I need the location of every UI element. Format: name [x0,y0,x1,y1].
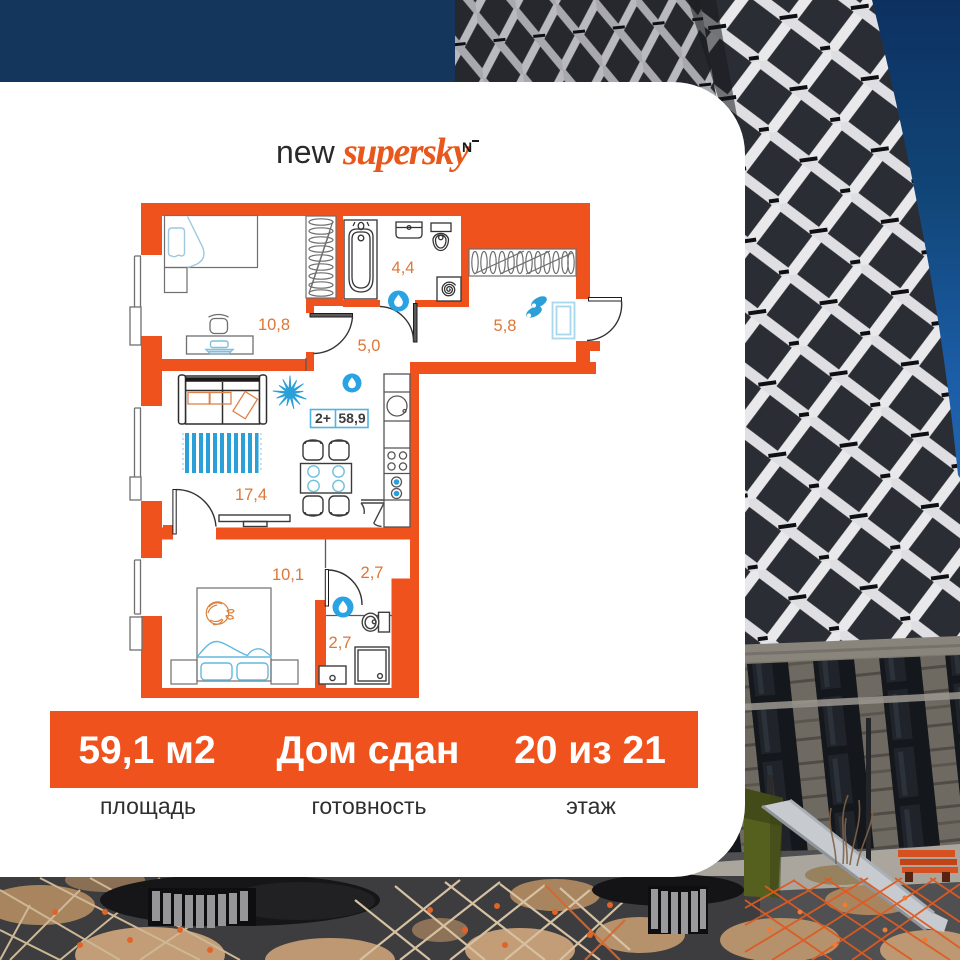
svg-text:20 из 21: 20 из 21 [514,729,666,772]
svg-text:supersky: supersky [342,131,470,173]
svg-text:N: N [462,139,472,155]
svg-text:площадь: площадь [100,793,196,819]
svg-text:5,8: 5,8 [494,317,517,335]
svg-text:10,1: 10,1 [272,566,304,584]
svg-text:new: new [276,134,336,170]
svg-text:4,4: 4,4 [392,259,415,277]
svg-text:этаж: этаж [566,793,616,819]
svg-text:58,9: 58,9 [338,410,365,426]
svg-text:5,0: 5,0 [358,337,381,355]
svg-text:17,4: 17,4 [235,486,267,504]
svg-text:2+: 2+ [315,410,331,426]
svg-text:Дом сдан: Дом сдан [277,729,460,772]
svg-text:готовность: готовность [312,793,427,819]
svg-text:10,8: 10,8 [258,316,290,334]
svg-text:2,7: 2,7 [329,634,352,652]
svg-text:2,7: 2,7 [361,564,384,582]
svg-text:59,1 м2: 59,1 м2 [78,729,215,772]
